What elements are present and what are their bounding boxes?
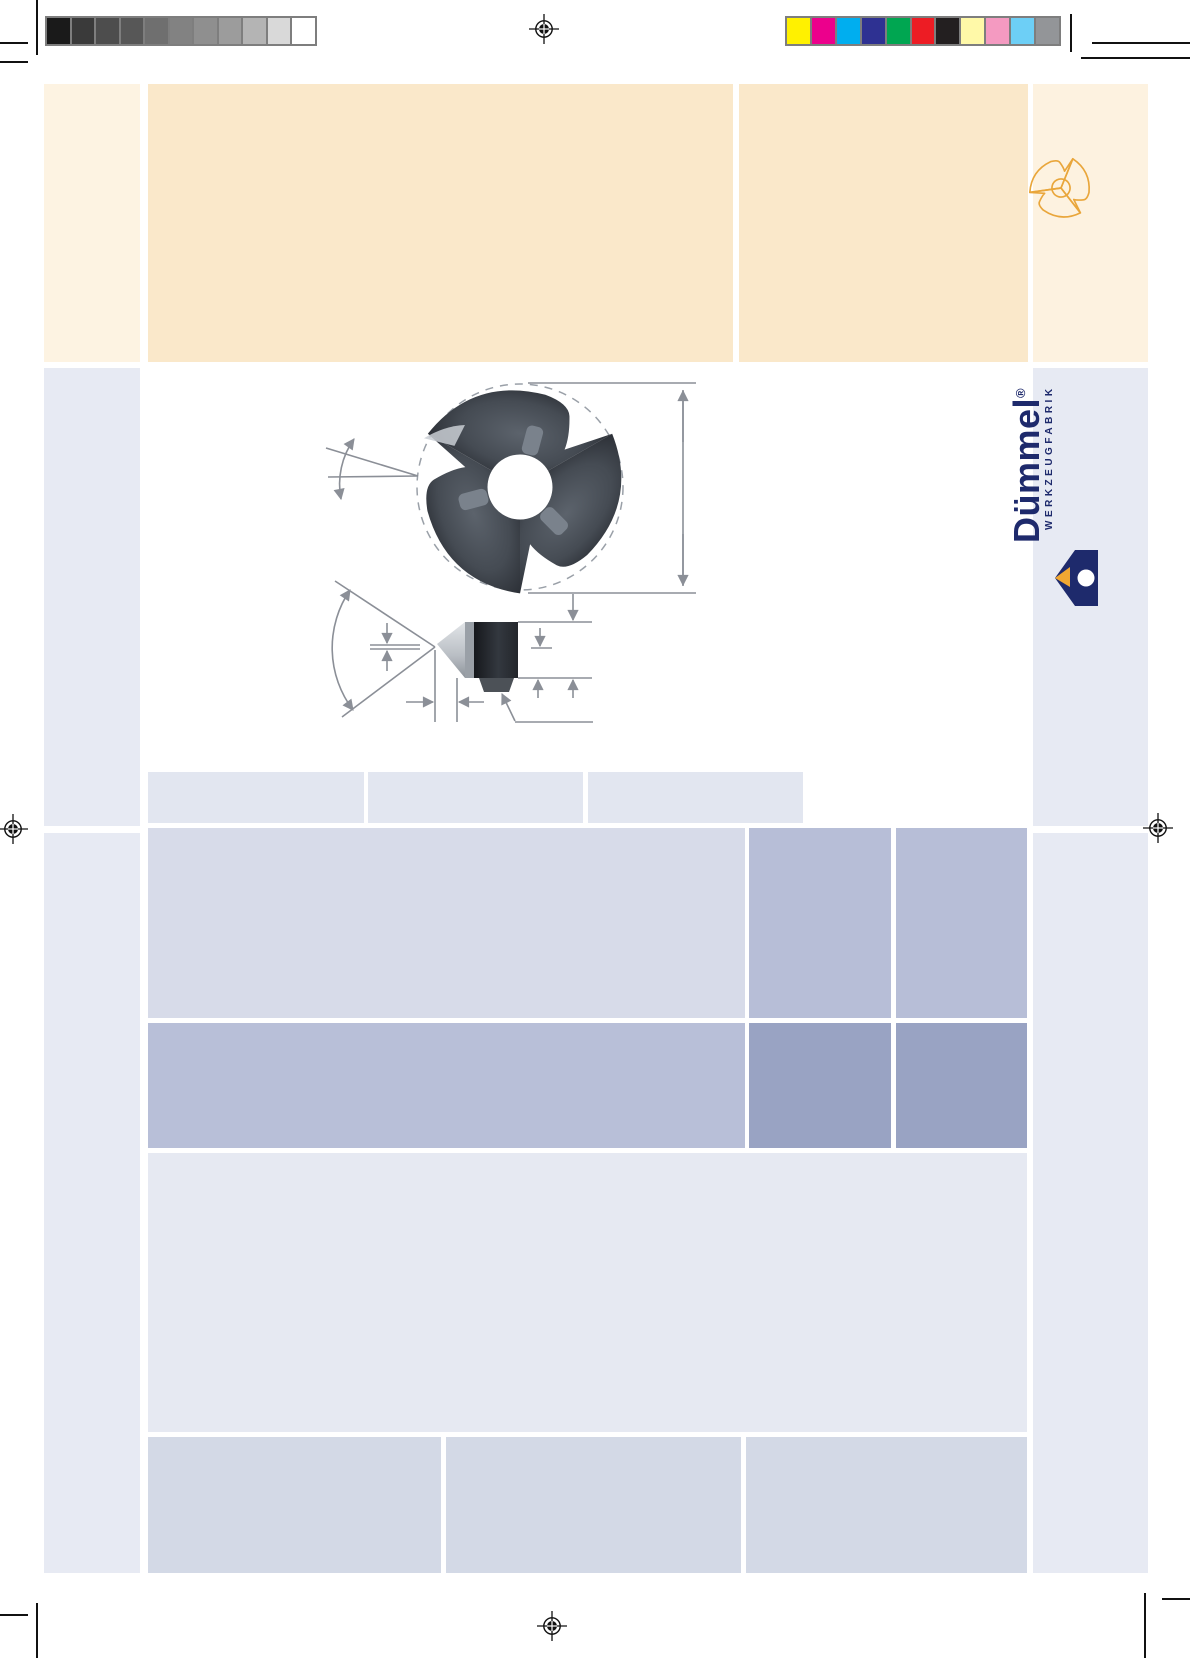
calibration-swatch: [170, 18, 193, 44]
catalog-page: Dümmel® WERKZEUGFABRIK: [0, 0, 1190, 1658]
calibration-swatch: [292, 18, 315, 44]
calibration-swatch: [837, 18, 860, 44]
sidebar-left-upper: [44, 368, 140, 826]
trim-mark: [0, 1614, 28, 1616]
trim-mark: [1162, 1598, 1190, 1600]
trim-mark: [36, 1603, 38, 1658]
calibration-swatch: [1036, 18, 1059, 44]
registration-mark-icon: [527, 12, 561, 46]
footer-block-2: [446, 1437, 741, 1573]
duemmel-logomark-icon: [1053, 546, 1099, 608]
technical-drawing: [260, 360, 730, 745]
tab-block-2: [368, 772, 583, 823]
calibration-swatch: [219, 18, 242, 44]
trim-mark: [36, 0, 38, 55]
calibration-swatch: [912, 18, 935, 44]
tab-block-3: [588, 772, 803, 823]
trim-mark: [1092, 42, 1190, 44]
table-row2-main-cell: [148, 1023, 745, 1148]
calibration-swatch: [47, 18, 70, 44]
table-row1-main-cell: [148, 828, 745, 1018]
trim-mark: [0, 42, 28, 44]
calibration-swatch: [787, 18, 810, 44]
sidebar-right-lower: [1033, 833, 1148, 1573]
brand-subtitle: WERKZEUGFABRIK: [1043, 390, 1057, 530]
dimension-heights: [518, 594, 592, 698]
calibration-swatch: [96, 18, 119, 44]
brand-name: Dümmel®: [1000, 371, 1042, 543]
calibration-swatch: [936, 18, 959, 44]
footer-block-3: [746, 1437, 1027, 1573]
trim-mark: [1144, 1593, 1146, 1658]
calibration-swatch: [862, 18, 885, 44]
header-banner-primary: [148, 84, 733, 362]
brand-registered: ®: [1013, 388, 1028, 398]
table-row2-cell-2: [749, 1023, 891, 1148]
header-banner-secondary: [739, 84, 1028, 362]
calibration-swatch: [194, 18, 217, 44]
table-row2-cell-3: [896, 1023, 1027, 1148]
insert-side-view: [437, 622, 518, 692]
calibration-swatch: [812, 18, 835, 44]
table-row1-cell-3: [896, 828, 1027, 1018]
calibration-swatch: [145, 18, 168, 44]
calibration-swatch: [961, 18, 984, 44]
calibration-swatch: [72, 18, 95, 44]
calibration-swatch: [121, 18, 144, 44]
trilobe-insert-outline-icon: [1020, 144, 1102, 232]
footer-block-1: [148, 1437, 441, 1573]
dimension-angle-rake: [326, 439, 418, 499]
calibration-swatch: [243, 18, 266, 44]
tab-block-1: [148, 772, 364, 823]
calibration-swatch: [1011, 18, 1034, 44]
calibration-swatch: [268, 18, 291, 44]
registration-mark-icon: [535, 1609, 569, 1643]
calibration-swatch: [887, 18, 910, 44]
sidebar-left-lower: [44, 833, 140, 1573]
registration-mark-icon: [0, 812, 30, 846]
header-spacer-left: [44, 84, 140, 362]
grayscale-calibration-bar: [45, 16, 317, 46]
trim-mark: [0, 61, 28, 63]
trim-mark: [1081, 57, 1190, 59]
trim-mark: [1070, 14, 1072, 52]
cmyk-calibration-bar: [785, 16, 1061, 46]
calibration-swatch: [986, 18, 1009, 44]
content-panel: [148, 1153, 1027, 1432]
table-row1-cell-2: [749, 828, 891, 1018]
